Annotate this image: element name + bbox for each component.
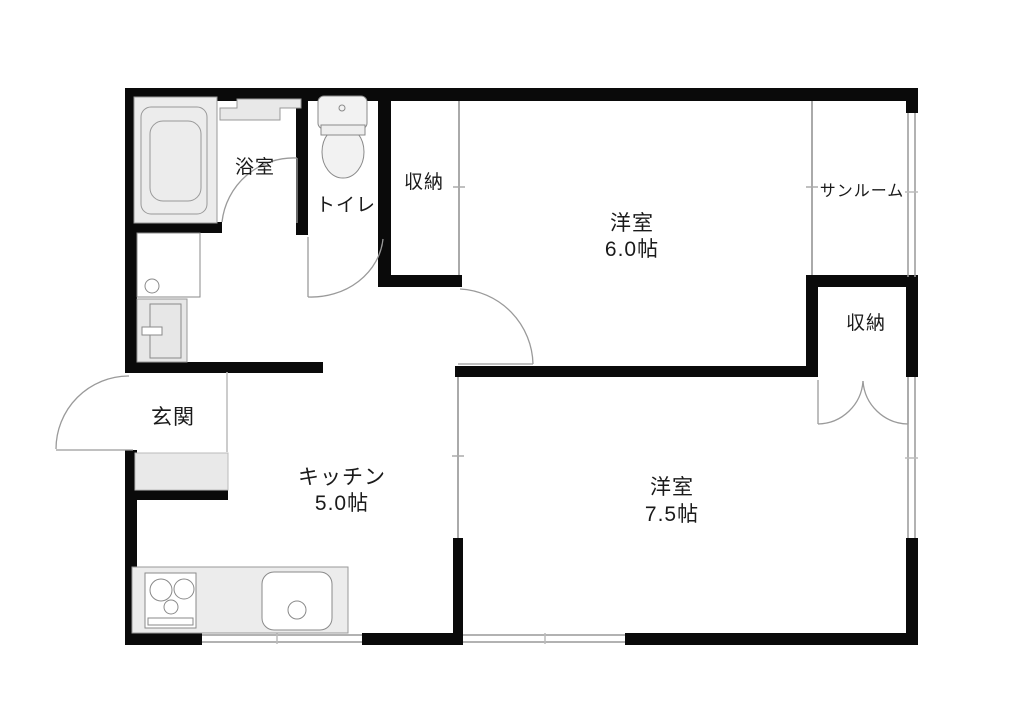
floor-plan-page: 浴室 トイレ 収納 洋室 6.0帖 サンルーム 収納 玄関 キッチン 5.0帖 … xyxy=(0,0,1031,728)
room-labels: 浴室 トイレ 収納 洋室 6.0帖 サンルーム 収納 玄関 キッチン 5.0帖 … xyxy=(151,156,904,526)
bathtub xyxy=(134,97,217,223)
wall-mid-left xyxy=(125,362,323,373)
label-sunroom: サンルーム xyxy=(820,183,905,200)
wall-bath-toilet xyxy=(296,101,308,235)
windows xyxy=(202,113,918,644)
entrance-step xyxy=(135,453,228,490)
wall-right-mid xyxy=(906,277,918,377)
stove-grill xyxy=(148,618,193,625)
wall-right-bottom xyxy=(906,538,918,645)
wall-closet-bedroom-top xyxy=(806,275,918,287)
wall-right-top-post xyxy=(906,88,918,113)
floor-plan-canvas: 浴室 トイレ 収納 洋室 6.0帖 サンルーム 収納 玄関 キッチン 5.0帖 … xyxy=(0,0,1031,728)
gas-stove xyxy=(145,573,196,628)
label-bedroom6-name: 洋室 xyxy=(610,212,654,235)
label-toilet: トイレ xyxy=(316,195,376,216)
label-kitchen-name: キッチン xyxy=(298,466,386,489)
washing-machine-pan xyxy=(137,233,200,297)
label-bedroom75-name: 洋室 xyxy=(650,476,694,499)
wall-kitchen-bedroom xyxy=(453,538,463,645)
water-heater-handle xyxy=(142,327,162,335)
label-kitchen-size: 5.0帖 xyxy=(315,492,369,515)
wall-below-bathtub xyxy=(125,222,222,233)
entrance-door-arc xyxy=(56,376,129,449)
wall-closet-bedroom-left xyxy=(806,277,818,377)
closet-door-right-arc xyxy=(863,381,908,424)
toilet-door-arc xyxy=(308,239,383,297)
toilet-tank xyxy=(318,96,367,129)
wall-closet-hall-bottom xyxy=(378,275,462,287)
wall-mid-right xyxy=(455,366,818,377)
closet-door-left-arc xyxy=(818,381,863,424)
kitchen-sink xyxy=(262,572,332,630)
bedroom6-door-arc xyxy=(460,289,533,364)
vanity-counter xyxy=(220,99,301,120)
wall-bottom-right xyxy=(625,633,918,645)
toilet-seat-hinge xyxy=(321,125,365,135)
label-closet-hall: 収納 xyxy=(404,171,444,193)
toilet-fixture xyxy=(318,96,367,178)
label-bathroom: 浴室 xyxy=(235,156,275,178)
water-heater xyxy=(137,299,187,362)
wall-bottom-kitchen-left xyxy=(125,633,202,645)
wall-entrance-step xyxy=(133,490,228,500)
wall-bottom-center xyxy=(362,633,463,645)
label-bedroom75-size: 7.5帖 xyxy=(645,503,699,526)
label-entrance: 玄関 xyxy=(151,406,195,429)
wall-toilet-closet xyxy=(378,101,391,287)
label-closet-bedroom: 収納 xyxy=(846,312,886,334)
bathtub-base xyxy=(134,97,217,223)
label-bedroom6-size: 6.0帖 xyxy=(605,238,659,261)
washing-machine xyxy=(137,233,200,297)
kitchen-counter xyxy=(132,567,348,633)
